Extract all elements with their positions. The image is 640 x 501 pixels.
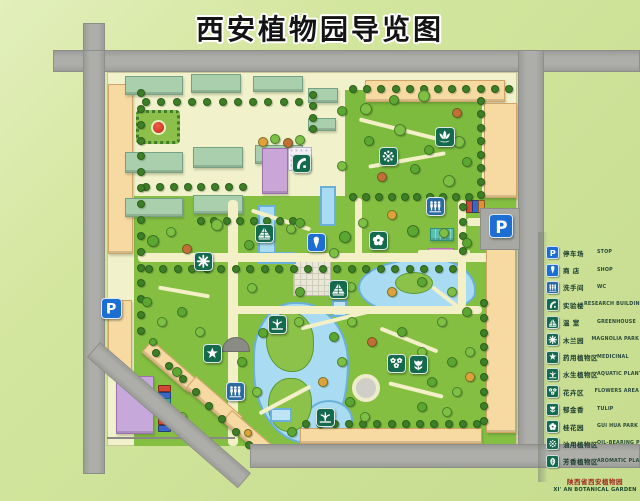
tree [244,429,252,437]
tree [345,420,353,428]
lotus-garden-marker [435,127,455,147]
tree [149,338,157,346]
flowers-icon [546,385,559,398]
tree [174,265,182,273]
tree [147,235,159,247]
legend-item-greenhouse: 温 室GREENHOUSE [546,314,639,331]
legend-label-en: STOP [597,250,612,255]
west-parking-sign: P [101,298,122,319]
red-flowerbed [153,122,164,133]
legend-item-research: 实验楼RESEARCH BUILDING [546,296,639,313]
fountain-plaza [352,374,380,402]
building [191,74,241,93]
tree [142,297,152,307]
tree [367,337,377,347]
tree [388,193,396,201]
building [125,152,183,173]
tree [407,225,419,237]
tree [462,238,472,248]
legend-item-sakura: 桂花园GUI HUA PARK [546,418,639,435]
legend-label-zh: 芳香植物区 [563,456,597,466]
tree [459,420,467,428]
legend-label-zh: 停车场 [563,248,597,258]
wc-south-marker [226,382,245,401]
legend-label-zh: 实验楼 [563,300,584,310]
tree [416,420,424,428]
tree [418,90,430,102]
legend-label-zh: 药用植物区 [563,352,597,362]
tree [261,265,269,273]
legend-label-en: FLOWERS AREA [595,389,639,394]
tree [375,193,383,201]
tree [232,265,240,273]
tree [145,265,153,273]
legend-label-zh: 水生植物区 [563,369,597,379]
west-road [83,50,105,474]
tree [480,314,488,322]
tree [166,227,176,237]
tree [348,265,356,273]
tree [377,265,385,273]
tree [445,420,453,428]
tree [452,387,462,397]
legend-item-star: 药用植物区MEDICINAL [546,348,639,365]
building [484,103,517,198]
tree [219,98,227,106]
tree [362,193,370,201]
tree [295,135,305,145]
tree [137,200,145,208]
tree [211,219,223,231]
building [193,147,243,168]
legend-footer: 陕西省西安植物园 XI' AN BOTANICAL GARDEN [552,476,638,493]
tree [318,377,328,387]
aromatic-icon [546,455,559,468]
tree [477,178,485,186]
building [125,198,183,217]
tree [179,375,187,383]
tree [244,240,254,250]
tree [337,357,347,367]
legend-item-shop: 商 店SHOP [546,261,639,278]
tree [364,136,374,146]
tree [184,183,192,191]
legend-label-zh: 木兰园 [563,335,591,345]
map-legend: P停车场STOP商 店SHOP洗手间WC实验楼RESEARCH BUILDING… [546,244,639,470]
legend-label-en: GREENHOUSE [597,320,636,325]
tree [447,357,457,367]
legend-label-en: WC [597,285,606,290]
legend-label-en: MEDICINAL [597,355,629,360]
tree [417,277,427,287]
tree [295,287,305,297]
tree [388,420,396,428]
tree [491,85,499,93]
curb-line [107,437,235,439]
tree [172,367,182,377]
tree [480,299,488,307]
legend-label-en: MAGNOLIA PARK [591,337,639,342]
legend-item-oil: 油用植物区OIL-BEARING PLANTS [546,435,639,452]
tree [258,137,268,147]
tree [182,244,192,254]
tree [442,407,452,417]
shop-marker [307,233,326,252]
tree [170,183,178,191]
legend-label-zh: 花卉区 [563,387,595,397]
tree [234,98,242,106]
tree [270,134,280,144]
tree [137,248,145,256]
botanical-garden-map: 西安植物园导览图 [0,0,640,501]
tree [319,265,327,273]
oil-bearing-marker [379,147,398,166]
tree [197,217,205,225]
legend-label-en: OIL-BEARING PLANTS [597,441,640,446]
tree [137,327,145,335]
magnolia-icon [546,333,559,346]
tree [477,85,485,93]
tree [406,265,414,273]
tree [449,265,457,273]
legend-label-zh: 油用植物区 [563,439,597,449]
tree [420,265,428,273]
legend-label-en: GUI HUA PARK [597,424,638,429]
shop-icon [546,264,559,277]
svg-text:P: P [549,248,555,257]
tree [345,397,355,407]
tree [459,203,467,211]
tree [188,98,196,106]
parked-car [158,385,171,392]
tree [477,191,485,199]
research-icon [546,298,559,311]
tree [394,124,406,136]
tree [237,357,247,367]
aquatic-marker-2 [316,408,335,427]
tree [465,372,475,382]
tree [137,89,145,97]
tree [462,307,472,317]
legend-label-en: AROMATIC PLANTS [597,459,640,464]
tree [360,103,372,115]
tree [247,283,257,293]
tree [137,264,145,272]
wc-north-marker [426,197,445,216]
tree [295,98,303,106]
tree [137,216,145,224]
tree [329,248,339,258]
tree [173,98,181,106]
tree [290,265,298,273]
tree [232,428,240,436]
tree [339,231,351,243]
greenhouse-marker-1 [255,224,274,243]
tree [302,420,310,428]
svg-text:P: P [495,217,507,235]
tree [443,175,455,187]
tree [294,317,304,327]
star-icon [546,351,559,364]
tree [480,388,488,396]
greenhouse-icon [546,316,559,329]
east-lake-island [395,272,433,294]
legend-item-parking: P停车场STOP [546,244,639,261]
building [300,428,482,444]
tree [329,332,339,342]
tree [406,85,414,93]
page-title: 西安植物园导览图 [196,8,444,48]
legend-label-zh: 郁金香 [563,404,597,414]
medicinal-marker [203,344,222,363]
tree [195,327,205,337]
tree [137,232,145,240]
north-road [53,50,640,72]
tree [437,317,447,327]
tree [337,161,347,171]
tree [447,287,457,297]
gui-hua-park-marker [369,231,388,250]
legend-label-zh: 桂花园 [563,422,597,432]
tree [283,138,293,148]
legend-item-tulip: 郁金香TULIP [546,401,639,418]
tree [377,172,387,182]
tree [295,218,305,228]
tree [389,95,399,105]
magnolia-park-marker [194,252,213,271]
building [253,76,303,92]
tree [309,91,317,99]
tree [427,377,437,387]
tree [358,218,368,228]
tree [477,151,485,159]
tree [287,427,297,437]
tree [465,193,473,201]
tree [401,193,409,201]
legend-label-zh: 洗手间 [563,282,597,292]
west-road-stub [83,23,105,53]
tree [337,106,347,116]
tree [177,307,187,317]
sakura-icon [546,420,559,433]
rect-pool-2 [270,408,292,422]
aquatic-icon [546,368,559,381]
parking-icon: P [546,246,559,259]
tree [309,125,317,133]
tree [480,358,488,366]
tree [239,183,247,191]
tree [477,97,485,105]
legend-label-zh: 温 室 [563,317,597,327]
legend-item-aquatic: 水生植物区AQUATIC PLANTS [546,366,639,383]
tree [459,247,467,255]
tree [286,224,296,234]
tree [137,105,145,113]
tree [439,228,449,238]
tree [424,145,434,155]
tulip-area-marker [409,355,428,374]
tree [280,98,288,106]
wc-icon [546,281,559,294]
tree [465,347,475,357]
legend-item-wc: 洗手间WC [546,279,639,296]
tree [157,317,167,327]
tree [349,193,357,201]
legend-label-en: RESEARCH BUILDING [584,302,640,307]
building [125,76,183,95]
legend-label-zh: 商 店 [563,265,597,275]
svg-text:P: P [106,302,116,317]
tree [276,217,284,225]
tree [402,420,410,428]
org-name-en: XI' AN BOTANICAL GARDEN [552,487,638,493]
tree [252,387,262,397]
tree [137,121,145,129]
tree [347,317,357,327]
tree [392,85,400,93]
org-name-zh: 陕西省西安植物园 [552,476,638,486]
tree [417,402,427,412]
tree [459,218,467,226]
building [486,238,516,433]
building [262,148,288,194]
tree [480,329,488,337]
tree [435,265,443,273]
flowers-area-marker [387,354,406,373]
tree [205,402,213,410]
tree [480,373,488,381]
tree [452,108,462,118]
tree [387,210,397,220]
tree [137,137,145,145]
legend-item-flowers: 花卉区FLOWERS AREA [546,383,639,400]
legend-label-en: AQUATIC PLANTS [597,372,640,377]
research-building-marker [292,154,311,173]
legend-item-aromatic: 芳香植物区AROMATIC PLANTS [546,453,639,470]
tree [477,124,485,132]
oil-icon [546,437,559,450]
tree [397,327,407,337]
aquatic-marker-1 [268,315,287,334]
greenhouse-marker-2 [329,280,348,299]
legend-label-en: TULIP [597,407,614,412]
tree [258,328,268,338]
tulip-icon [546,403,559,416]
legend-label-en: SHOP [597,268,613,273]
tree [349,85,357,93]
tree [505,85,513,93]
tree [309,114,317,122]
legend-item-magnolia: 木兰园MAGNOLIA PARK [546,331,639,348]
tree [152,349,160,357]
tree [462,157,472,167]
tree [156,183,164,191]
tree [410,164,420,174]
canal-2 [320,186,336,226]
tree [480,417,488,425]
tree [387,287,397,297]
east-parking-sign: P [489,214,513,238]
tree [360,412,370,422]
